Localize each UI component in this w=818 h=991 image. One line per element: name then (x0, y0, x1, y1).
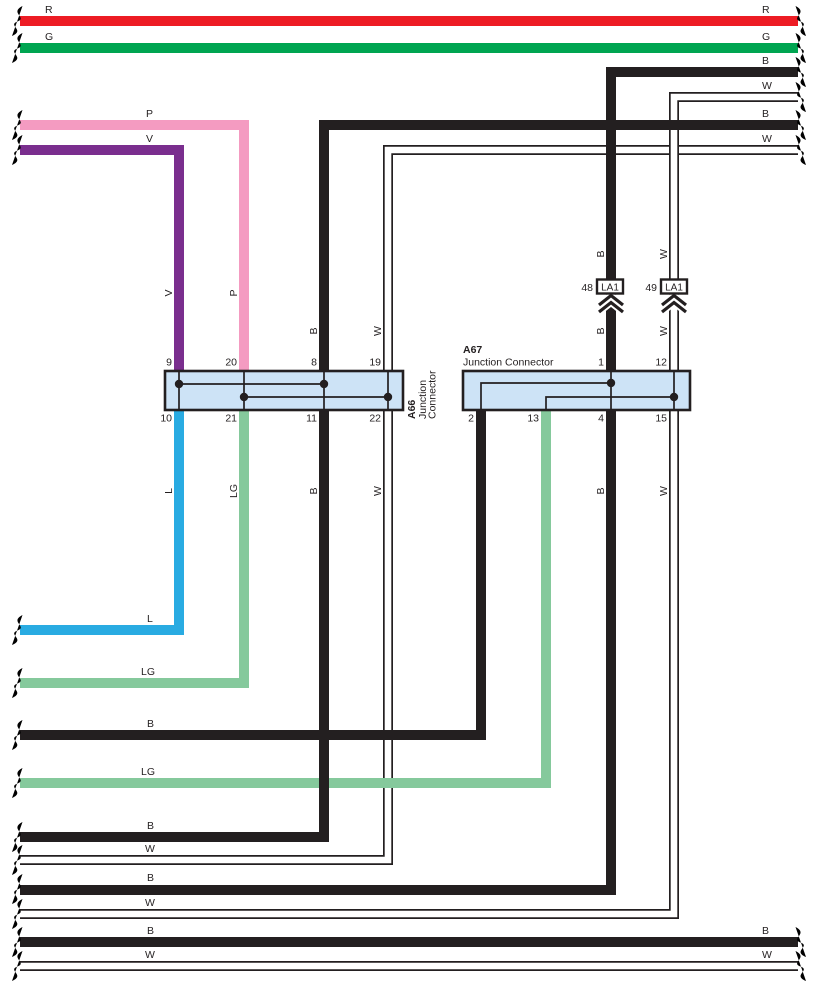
wire-light-green-a66 (20, 406, 244, 683)
a66-junction-dot (384, 393, 392, 401)
connector-a67-box (463, 371, 690, 410)
wire-label-p: P (228, 289, 240, 296)
wire-white-a66-pin19-22-core (20, 150, 798, 860)
a66-junction-dot (175, 380, 183, 388)
la1-left-pin: 48 (581, 282, 593, 294)
wire-label-w: W (658, 326, 670, 336)
a66-name-line2: Connector (427, 370, 439, 419)
connector-a66-box (165, 371, 403, 410)
pin-label-12: 12 (655, 357, 667, 369)
pin-label-13: 13 (527, 413, 539, 425)
black-wires (20, 72, 798, 942)
wiring-diagram-page: LA1 48 LA1 49 R G P (0, 0, 818, 991)
pin-label-4: 4 (598, 413, 604, 425)
a67-name: Junction Connector (463, 357, 554, 369)
la1-reference-left: LA1 48 (581, 280, 623, 313)
wire-label-b: B (308, 487, 320, 494)
pin-label-2: 2 (468, 413, 474, 425)
wire-label-b: B (595, 327, 607, 334)
pin-label-20: 20 (225, 357, 237, 369)
a66-junction-dot (240, 393, 248, 401)
wire-label-b: B (762, 108, 769, 120)
wire-label-w: W (658, 486, 670, 496)
wire-label-lg: LG (141, 666, 155, 678)
wire-label-w: W (145, 897, 155, 909)
wire-label-w: W (762, 80, 772, 92)
la1-left-label: LA1 (601, 283, 619, 294)
wire-white-a67-pin12-15-core (20, 97, 798, 914)
pin-label-9: 9 (166, 357, 172, 369)
connector-a66-title: A66 Junction Connector (406, 370, 439, 419)
wire-label-lg: LG (141, 766, 155, 778)
wire-label-r: R (762, 4, 770, 16)
pin-label-22: 22 (369, 413, 381, 425)
wire-label-w: W (372, 486, 384, 496)
wire-label-b: B (762, 55, 769, 67)
wire-blue (20, 406, 179, 630)
wire-label-b: B (147, 925, 154, 937)
wire-label-b: B (595, 487, 607, 494)
wire-violet (20, 150, 179, 402)
pin-label-19: 19 (369, 357, 381, 369)
pin-label-1: 1 (598, 357, 604, 369)
a67-junction-dot (607, 379, 615, 387)
wire-label-r: R (45, 4, 53, 16)
pin-label-11: 11 (306, 413, 317, 425)
pin-label-21: 21 (225, 413, 237, 425)
wire-light-green-a67 (20, 404, 546, 783)
la1-reference-right: LA1 49 (645, 280, 687, 313)
wire-label-w: W (145, 843, 155, 855)
wire-black-a67-pin1-4 (20, 72, 798, 890)
wire-white-a67-pin12-15 (20, 97, 798, 914)
wire-white-a66-pin19-22 (20, 150, 798, 860)
wiring-diagram: LA1 48 LA1 49 R G P (0, 0, 818, 991)
wire-label-v: V (163, 289, 175, 296)
wire-label-l: L (147, 613, 153, 625)
a67-id: A67 (463, 344, 482, 356)
wire-label-p: P (146, 108, 153, 120)
wire-label-b: B (147, 872, 154, 884)
wire-label-g: G (45, 31, 53, 43)
wire-label-l: L (163, 488, 175, 494)
connector-a67-title: A67 Junction Connector (463, 344, 554, 369)
la1-right-label: LA1 (665, 283, 683, 294)
a66-junction-dot (320, 380, 328, 388)
wire-label-b: B (595, 250, 607, 257)
wire-label-w: W (372, 326, 384, 336)
pin-label-15: 15 (655, 413, 667, 425)
a67-junction-dot (670, 393, 678, 401)
pin-label-8: 8 (311, 357, 317, 369)
wire-label-b: B (147, 820, 154, 832)
wire-label-b: B (308, 327, 320, 334)
wire-label-lg: LG (228, 484, 240, 498)
wire-label-w: W (145, 949, 155, 961)
wire-label-v: V (146, 133, 153, 145)
wire-label-b: B (147, 718, 154, 730)
wire-label-g: G (762, 31, 770, 43)
la1-right-pin: 49 (645, 282, 657, 294)
pin-label-10: 10 (160, 413, 172, 425)
wire-label-w: W (762, 949, 772, 961)
wire-label-w: W (762, 133, 772, 145)
wire-pink (20, 125, 244, 402)
wire-label-b: B (762, 925, 769, 937)
wire-label-w: W (658, 249, 670, 259)
